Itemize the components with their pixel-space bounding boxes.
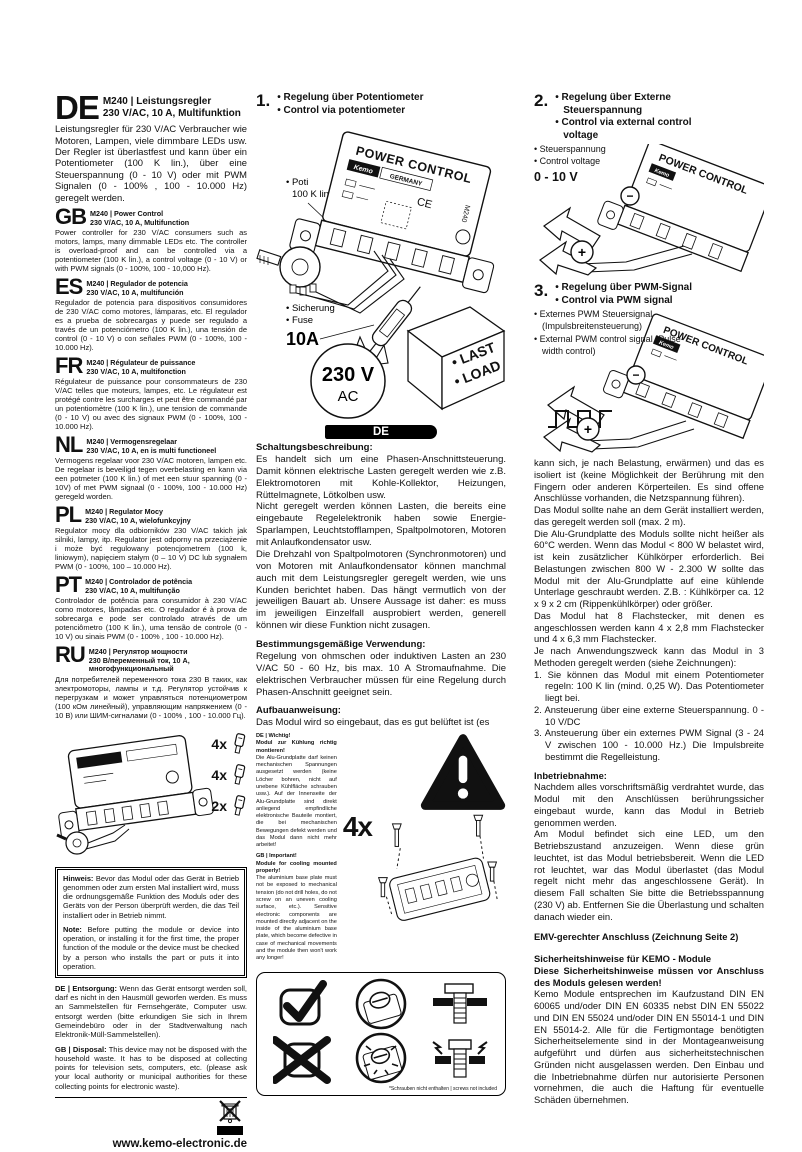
figure2-canvas: POWER CONTROL Kemo <box>534 144 764 276</box>
language-section: DE M240 | Leistungsregler 230 V/AC, 10 A… <box>55 94 247 203</box>
mount-warning-bold-gb: Module for cooling mounted properly! <box>256 861 337 874</box>
screw-mounting-illustration <box>376 813 506 931</box>
product-description: Для потребителей переменного тока 230 В … <box>55 675 247 720</box>
screw-side-bad-icon <box>431 1032 489 1084</box>
product-title: M240 | Controlador de potência 230 V/AC,… <box>85 576 192 595</box>
figure3-heading: 3. • Regelung über PWM-Signal• Control v… <box>534 282 764 307</box>
figure1-bullet: • Control via potentiometer <box>277 105 423 118</box>
figure3-bullet: • Regelung über PWM-Signal <box>555 282 692 295</box>
figure2-bullet: • Regelung über Externe Steuerspannung <box>555 92 695 117</box>
svg-text:−: − <box>632 368 639 382</box>
product-title: M240 | Power Control 230 V/AC, 10 A, Mul… <box>90 208 189 227</box>
emc-connection-note: EMV-gerechter Anschluss (Zeichnung Seite… <box>534 931 764 943</box>
product-title: M240 | Регулятор мощности 230 В/переменн… <box>89 646 247 673</box>
load-illustration: • LAST • LOAD <box>408 307 504 409</box>
svg-text:AC: AC <box>338 388 359 405</box>
figure3-number: 3. <box>534 282 548 307</box>
svg-text:+: + <box>584 421 592 437</box>
flat-connector-icon <box>231 795 247 817</box>
safety-heading: Sicherheitshinweise für KEMO - Module <box>534 953 764 965</box>
notice-text-en: Before putting the module or device into… <box>63 925 239 971</box>
language-section: NL M240 | Vermogensregelaar 230 V/AC, 10… <box>55 436 247 501</box>
screw-flat-ok-icon <box>352 978 410 1030</box>
warning-triangle-icon <box>420 733 506 811</box>
manual-page: DE M240 | Leistungsregler 230 V/AC, 10 A… <box>0 0 802 1152</box>
mount-warning-label-gb: GB | Important! <box>256 853 297 859</box>
screw-side-ok-icon <box>431 978 489 1030</box>
figure1-bullet: • Regelung über Potentiometer <box>277 92 423 105</box>
product-description: Regulator mocy dla odbiorników 230 V/AC … <box>55 526 247 571</box>
startup-paragraph: Nachdem alles vorschriftsmäßig verdrahte… <box>534 781 764 828</box>
svg-text:−: − <box>626 189 633 203</box>
language-code: DE <box>55 94 99 122</box>
module-illustration <box>55 725 215 863</box>
cross-icon <box>273 1032 331 1084</box>
part-quantity-label: 4x <box>211 767 227 783</box>
language-code: FR <box>55 357 82 376</box>
safety-subheading: Diese Sicherheitshinweise müssen vor Ans… <box>534 965 764 989</box>
german-section-banner: DE <box>325 425 437 439</box>
svg-text:• Sicherung: • Sicherung <box>286 303 335 314</box>
startup-paragraph: Am Modul befindet sich eine LED, um den … <box>534 828 764 922</box>
product-description: Leistungsregler für 230 V/AC Verbraucher… <box>55 123 247 203</box>
description-paragraph: Je nach Anwendungszweck kann das Modul i… <box>534 645 764 669</box>
svg-text:• Fuse: • Fuse <box>286 315 313 326</box>
assembly-heading: Aufbauanweisung: <box>256 705 506 717</box>
description-paragraph: Die Alu-Grundplatte des Moduls sollte ni… <box>534 528 764 610</box>
language-code: ES <box>55 278 82 297</box>
product-title: M240 | Vermogensregelaar 230 V/AC, 10 A,… <box>86 436 216 455</box>
circuit-description-paragraph: Nicht geregelt werden können Lasten, die… <box>256 501 506 549</box>
figure2-labels: • Steuerspannung• Control voltage 0 - 10… <box>534 144 624 186</box>
control-voltage-value: 0 - 10 V <box>534 169 624 185</box>
mount-warning-label-de: DE | Wichtig! <box>256 733 290 739</box>
website-url: www.kemo-electronic.de <box>55 1138 247 1150</box>
language-code: PT <box>55 576 81 595</box>
control-method-item: 3. Ansteuerung über ein externes PWM Sig… <box>534 727 764 762</box>
screw-stress-bad-icon <box>352 1032 410 1084</box>
description-paragraph: Das Modul sollte nahe an dem Gerät insta… <box>534 504 764 528</box>
parts-quantities: 4x 4x <box>211 733 247 826</box>
part-quantity-label: 2x <box>211 798 227 814</box>
svg-text:10A: 10A <box>286 329 319 349</box>
circuit-description-heading: Schaltungsbeschreibung: <box>256 442 506 454</box>
startup-heading: Inbetriebnahme: <box>534 770 764 782</box>
figure1-canvas: • Poti 100 K lin. POWER CONTROL Kemo GER… <box>256 119 506 421</box>
figure3-bullet: • Control via PWM signal <box>555 295 692 308</box>
language-section: RU M240 | Регулятор мощности 230 В/перем… <box>55 646 247 719</box>
figure2-label: • Control voltage <box>534 156 624 168</box>
disposal-gb: GB | Disposal: This device may not be di… <box>55 1045 247 1091</box>
mains-voltage-badge: 230 V AC <box>311 344 385 418</box>
product-title: M240 | Regulator Mocy 230 V/AC, 10 A, wi… <box>85 506 191 525</box>
product-description: Vermogens regelaar voor 230 V/AC motoren… <box>55 456 247 501</box>
assembly-paragraph: Das Modul wird so eingebaut, das es gut … <box>256 717 506 729</box>
notice-label-de: Hinweis: <box>63 874 93 883</box>
description-paragraph: kann sich, je nach Belastung, erwärmen) … <box>534 457 764 504</box>
language-column: DE M240 | Leistungsregler 230 V/AC, 10 A… <box>55 94 247 1152</box>
center-column: 1. • Regelung über Potentiometer• Contro… <box>256 92 506 1096</box>
control-method-item: 1. Sie können das Modul mit einem Potent… <box>534 669 764 704</box>
svg-text:+: + <box>578 244 586 260</box>
part-quantity-label: 4x <box>211 736 227 752</box>
part-quantity-row: 2x <box>211 795 247 817</box>
part-quantity-row: 4x <box>211 764 247 786</box>
parts-figure: 4x 4x <box>55 725 247 863</box>
figure2-bullet: • Control via external control voltage <box>555 117 695 142</box>
figure1-number: 1. <box>256 92 270 117</box>
mounting-warning-textbox: DE | Wichtig! Modul zur Kühlung richtig … <box>256 733 337 966</box>
mounting-warning-row: DE | Wichtig! Modul zur Kühlung richtig … <box>256 733 506 966</box>
language-section: PL M240 | Regulator Mocy 230 V/AC, 10 A,… <box>55 506 247 571</box>
product-title: M240 | Regulador de potencia 230 V/AC, 1… <box>86 278 187 297</box>
product-description: Power controller for 230 V/AC consumers … <box>55 228 247 273</box>
figure3-labels: • Externes PWM Steuersignal (Impulsbreit… <box>534 309 684 360</box>
language-section: ES M240 | Regulador de potencia 230 V/AC… <box>55 278 247 352</box>
figure1-heading: 1. • Regelung über Potentiometer• Contro… <box>256 92 506 117</box>
language-sections: DE M240 | Leistungsregler 230 V/AC, 10 A… <box>55 94 247 720</box>
notice-label-en: Note: <box>63 925 82 934</box>
figure3-label: • External PWM control signal (Pulse-wid… <box>534 334 684 357</box>
disposal-de: DE | Entsorgung: Wenn das Gerät entsorgt… <box>55 984 247 1039</box>
right-column: 2. • Regelung über Externe Steuerspannun… <box>534 92 764 1106</box>
flat-connector-icon <box>231 764 247 786</box>
language-code: PL <box>55 506 81 525</box>
control-method-item: 2. Ansteuerung über eine externe Steuers… <box>534 704 764 728</box>
svg-text:• Poti: • Poti <box>286 177 308 188</box>
weee-bin-icon <box>219 1098 241 1124</box>
description-paragraph: Das Modul hat 8 Flachstecker, mit denen … <box>534 610 764 645</box>
product-description: Controlador de potência para consumidor … <box>55 596 247 641</box>
figure1-illustration: • Poti 100 K lin. POWER CONTROL Kemo GER… <box>256 119 506 421</box>
svg-text:100 K lin.: 100 K lin. <box>292 189 332 200</box>
intended-use-heading: Bestimmungsgemäßige Verwendung: <box>256 639 506 651</box>
intended-use-paragraph: Regelung von ohmschen oder induktiven La… <box>256 651 506 699</box>
language-code: NL <box>55 436 82 455</box>
language-section: FR M240 | Régulateur de puissance 230 V/… <box>55 357 247 431</box>
black-mark <box>217 1126 243 1135</box>
screw-quantity-label: 4x <box>343 813 372 841</box>
language-code: GB <box>55 208 86 227</box>
flat-connector-icon <box>231 733 247 755</box>
mounting-dos-donts-box: *Schrauben nicht enthalten | screws not … <box>256 972 506 1096</box>
checkmark-icon <box>273 978 331 1030</box>
german-description-continued: kann sich, je nach Belastung, erwärmen) … <box>534 457 764 1106</box>
product-description: Régulateur de puissance pour consommateu… <box>55 377 247 431</box>
language-code: RU <box>55 646 85 665</box>
mount-warning-text-de: Die Alu-Grundplatte darf keinen mechanis… <box>256 755 337 848</box>
product-title: M240 | Régulateur de puissance 230 V/AC,… <box>86 357 195 376</box>
circuit-description-paragraph: Es handelt sich um eine Phasen-Anschnitt… <box>256 454 506 502</box>
figure2-heading: 2. • Regelung über Externe Steuerspannun… <box>534 92 764 142</box>
language-section: PT M240 | Controlador de potência 230 V/… <box>55 576 247 641</box>
part-quantity-row: 4x <box>211 733 247 755</box>
figure3-canvas: POWER CONTROL Kemo <box>534 309 764 457</box>
product-title: M240 | Leistungsregler 230 V/AC, 10 A, M… <box>103 94 241 119</box>
mount-warning-text-gb: The aluminium base plate must not be exp… <box>256 875 337 961</box>
safety-body: Kemo Module entsprechen im Kaufzustand D… <box>534 988 764 1106</box>
svg-text:230 V: 230 V <box>322 364 375 386</box>
product-description: Regulador de potencia para dispositivos … <box>55 298 247 352</box>
mount-warning-bold-de: Modul zur Kühlung richtig montieren! <box>256 740 337 753</box>
screws-not-included-note: *Schrauben nicht enthalten | screws not … <box>389 1086 497 1092</box>
check-before-use-notice: Hinweis: Bevor das Modul oder das Gerät … <box>55 867 247 979</box>
language-section: GB M240 | Power Control 230 V/AC, 10 A, … <box>55 208 247 273</box>
circuit-description-paragraph: Die Drehzahl von Spaltpolmotoren (Synchr… <box>256 549 506 632</box>
figure3-label: • Externes PWM Steuersignal (Impulsbreit… <box>534 309 684 332</box>
figure2-number: 2. <box>534 92 548 142</box>
figure2-label: • Steuerspannung <box>534 144 624 156</box>
